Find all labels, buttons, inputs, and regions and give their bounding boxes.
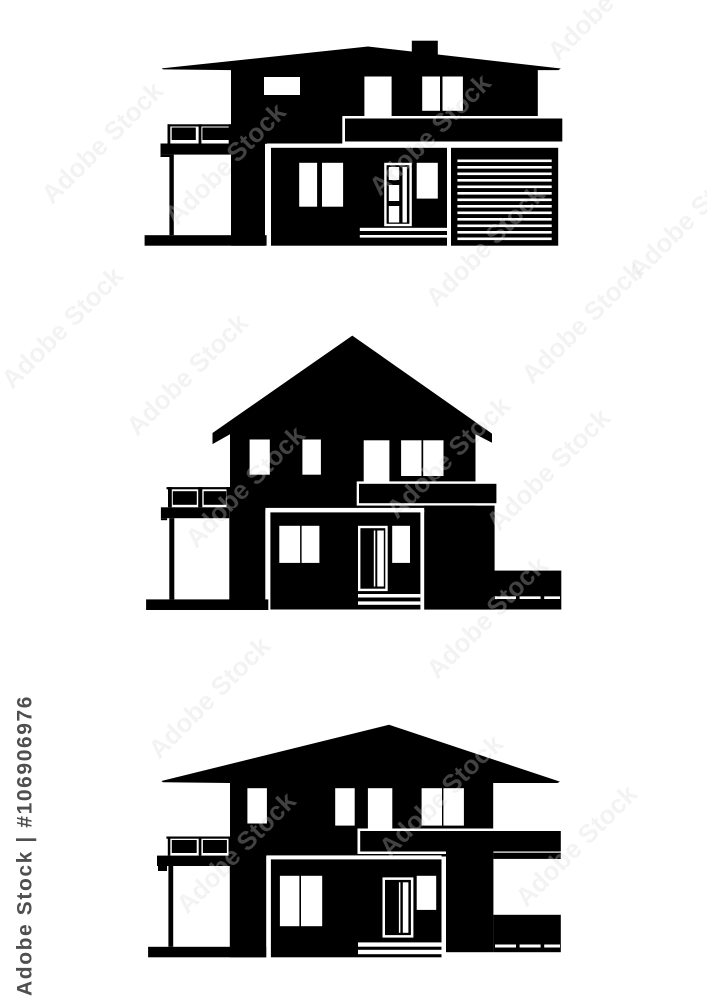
svg-text:Adobe Stock | #106906976: Adobe Stock | #106906976 xyxy=(13,695,36,996)
